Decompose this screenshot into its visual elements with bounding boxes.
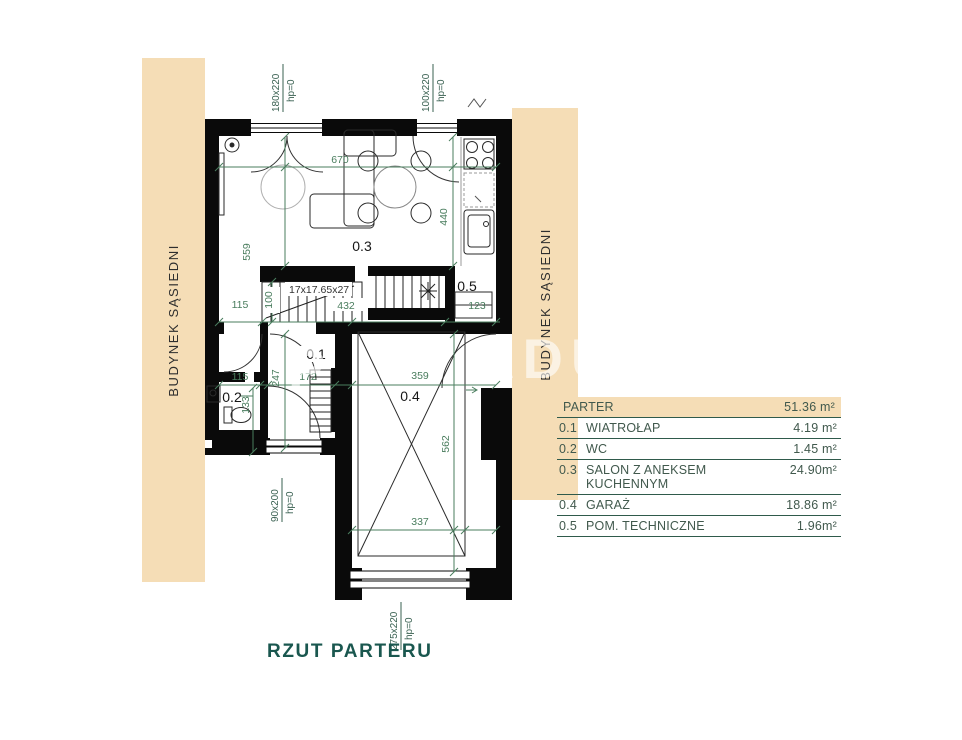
dimension-100: 100 — [263, 291, 275, 309]
room-name: WIATROŁAP — [586, 421, 661, 435]
room-area: 1.45 m² — [793, 442, 837, 456]
room-label-0-5: 0.5 — [457, 278, 477, 294]
svg-text:180x220: 180x220 — [271, 73, 282, 112]
room-name: SALON Z ANEKSEM KUCHENNYM — [586, 463, 790, 491]
floor-plan: 670 559 440 115 100 432 123 115 247 172 … — [0, 0, 962, 740]
dimension-670: 670 — [331, 154, 349, 166]
room-area: 18.86 m² — [786, 498, 837, 512]
legend-row-0-4: 0.4 GARAŻ 18.86 m² — [557, 495, 841, 516]
room-area: 24.90m² — [790, 463, 837, 477]
room-number: 0.2 — [559, 442, 577, 456]
room-name: WC — [586, 442, 607, 456]
room-name: POM. TECHNICZNE — [586, 519, 705, 533]
dimension-247: 247 — [270, 369, 282, 387]
section-mark-icon — [468, 99, 486, 107]
wall-notch — [205, 440, 212, 448]
svg-text:hp=0: hp=0 — [404, 617, 415, 640]
legend-header-row: PARTER 51.36 m² — [557, 397, 841, 418]
svg-text:90x200: 90x200 — [270, 489, 281, 522]
room-number: 0.4 — [559, 498, 577, 512]
dimension-337: 337 — [411, 516, 429, 528]
dimension-123: 123 — [468, 300, 486, 312]
legend-row-0-5: 0.5 POM. TECHNICZNE 1.96m² — [557, 516, 841, 537]
door-label-90x200: 90x200 hp=0 — [270, 478, 296, 522]
room-label-0-3: 0.3 — [352, 238, 372, 254]
window-100x220-icon — [417, 124, 457, 133]
legend-row-0-1: 0.1 WIATROŁAP 4.19 m² — [557, 418, 841, 439]
legend-table: PARTER 51.36 m² 0.1 WIATROŁAP 4.19 m² 0.… — [557, 397, 841, 537]
sofa-icon — [310, 130, 396, 228]
dimension-115-top: 115 — [232, 299, 249, 311]
dimension-359: 359 — [411, 370, 429, 382]
dimension-440: 440 — [438, 208, 450, 226]
room-area: 1.96m² — [797, 519, 837, 533]
window-label-180x220: 180x220 hp=0 — [271, 64, 297, 112]
room-label-0-1: 0.1 — [306, 346, 326, 362]
floorplan-page: BUDYNEK SĄSIEDNI BUDYNEK SĄSIEDNI — [0, 0, 962, 740]
room-label-0-4: 0.4 — [400, 388, 420, 404]
room-label-0-2: 0.2 — [222, 389, 242, 405]
dimension-133: 133 — [240, 396, 252, 414]
window-label-100x220: 100x220 hp=0 — [421, 64, 447, 112]
stair-direction-icon — [419, 282, 437, 300]
rug-icon — [261, 165, 305, 209]
stove-icon — [464, 139, 494, 169]
kitchen-counter-icon — [461, 137, 494, 266]
radiator-icon — [219, 153, 224, 215]
room-number: 0.5 — [559, 519, 577, 533]
dimension-432: 432 — [337, 300, 355, 312]
dimension-562: 562 — [440, 435, 452, 453]
dining-table-icon — [358, 151, 431, 223]
svg-text:100x220: 100x220 — [421, 73, 432, 112]
dimension-172: 172 — [299, 371, 317, 383]
dimension-559: 559 — [241, 243, 253, 261]
dimension-115-mid: 115 — [232, 371, 249, 383]
legend-row-0-2: 0.2 WC 1.45 m² — [557, 439, 841, 460]
door-90x200-icon — [266, 440, 322, 453]
svg-text:hp=0: hp=0 — [286, 79, 297, 102]
room-number: 0.3 — [559, 463, 577, 491]
legend-header-area: 51.36 m² — [784, 400, 835, 414]
stairs-spec-label: 17x17.65x27 — [289, 284, 349, 296]
svg-text:hp=0: hp=0 — [436, 79, 447, 102]
legend-header-name: PARTER — [563, 400, 614, 414]
page-title: RZUT PARTERU — [267, 641, 433, 663]
room-number: 0.1 — [559, 421, 577, 435]
room-area: 4.19 m² — [793, 421, 837, 435]
window-180x220-icon — [251, 124, 322, 133]
floor-lamp-icon — [225, 138, 239, 152]
legend-row-0-3: 0.3 SALON Z ANEKSEM KUCHENNYM 24.90m² — [557, 460, 841, 495]
room-name: GARAŻ — [586, 498, 630, 512]
svg-text:hp=0: hp=0 — [285, 491, 296, 514]
window-glyphs — [251, 124, 470, 589]
